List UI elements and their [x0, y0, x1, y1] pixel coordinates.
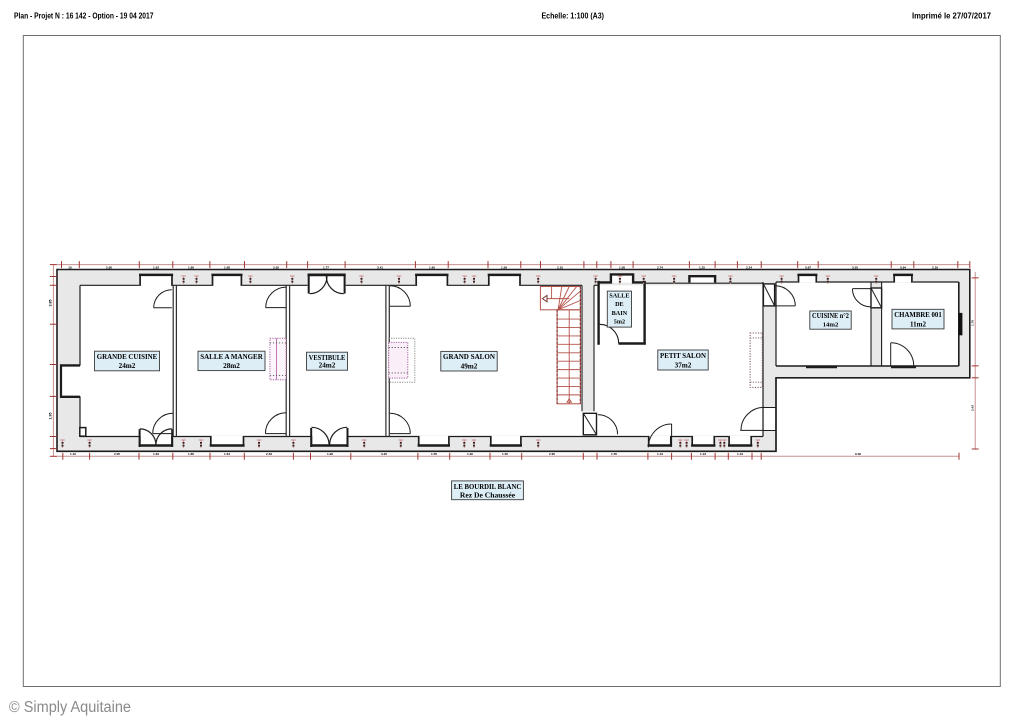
svg-text:1.95: 1.95: [48, 413, 52, 420]
svg-text:2.90: 2.90: [106, 265, 112, 269]
svg-text:24m2: 24m2: [119, 362, 136, 370]
svg-text:Imprimé le 27/07/2017: Imprimé le 27/07/2017: [912, 12, 991, 21]
svg-text:SALLE A MANGER: SALLE A MANGER: [200, 352, 263, 361]
svg-text:DE: DE: [615, 301, 624, 308]
svg-text:2.33: 2.33: [266, 452, 272, 456]
svg-text:3.41: 3.41: [377, 265, 383, 269]
svg-text:1.13: 1.13: [700, 452, 706, 456]
svg-text:1.68: 1.68: [224, 265, 230, 269]
svg-text:2.05: 2.05: [273, 265, 279, 269]
svg-text:0.97: 0.97: [805, 265, 811, 269]
svg-text:1.59: 1.59: [501, 265, 507, 269]
svg-text:1.08: 1.08: [619, 265, 625, 269]
svg-text:1.13: 1.13: [657, 452, 663, 456]
svg-text:2.10: 2.10: [557, 265, 563, 269]
svg-text:1.63: 1.63: [153, 452, 159, 456]
svg-text:1.64: 1.64: [224, 452, 230, 456]
svg-text:1.80: 1.80: [188, 452, 194, 456]
svg-text:11m2: 11m2: [910, 320, 926, 328]
svg-text:SALLE: SALLE: [609, 293, 629, 300]
svg-text:2.05: 2.05: [114, 452, 120, 456]
svg-text:2.19: 2.19: [932, 265, 938, 269]
svg-text:5m2: 5m2: [614, 318, 625, 325]
svg-text:1.50: 1.50: [502, 452, 508, 456]
svg-text:24m2: 24m2: [319, 362, 336, 370]
svg-text:1.10: 1.10: [70, 452, 76, 456]
svg-text:BAIN: BAIN: [612, 310, 628, 317]
svg-text:1.60: 1.60: [429, 265, 435, 269]
svg-text:0.94: 0.94: [900, 265, 906, 269]
svg-text:3.20: 3.20: [381, 452, 387, 456]
svg-text:1.77: 1.77: [323, 265, 329, 269]
svg-text:49m2: 49m2: [461, 362, 478, 370]
svg-text:1.55: 1.55: [611, 452, 617, 456]
svg-text:CUISINE n°2: CUISINE n°2: [812, 313, 849, 320]
svg-text:Plan - Projet N : 16 142 - Opt: Plan - Projet N : 16 142 - Option - 19 0…: [14, 12, 154, 21]
svg-text:10: 10: [68, 265, 72, 269]
svg-text:3.85: 3.85: [48, 300, 52, 307]
svg-text:1.80: 1.80: [188, 265, 194, 269]
svg-text:GRANDE CUISINE: GRANDE CUISINE: [97, 352, 158, 361]
svg-text:2.95: 2.95: [549, 452, 555, 456]
svg-text:14m2: 14m2: [823, 322, 839, 329]
svg-text:Rez De Chaussée: Rez De Chaussée: [460, 490, 516, 499]
svg-text:1.90: 1.90: [467, 452, 473, 456]
svg-text:37m2: 37m2: [675, 361, 692, 369]
svg-text:2.24: 2.24: [746, 265, 752, 269]
svg-text:1.70: 1.70: [970, 320, 974, 326]
svg-text:Echelle: 1:100 (A3): Echelle: 1:100 (A3): [542, 12, 605, 21]
svg-text:9.48: 9.48: [855, 452, 861, 456]
svg-text:3.55: 3.55: [852, 265, 858, 269]
svg-text:1.90: 1.90: [327, 452, 333, 456]
svg-text:1.13: 1.13: [737, 452, 743, 456]
svg-text:1.25: 1.25: [699, 265, 705, 269]
svg-text:CHAMBRE 001: CHAMBRE 001: [894, 310, 942, 319]
svg-text:1.63: 1.63: [153, 265, 159, 269]
svg-text:PETIT SALON: PETIT SALON: [660, 351, 706, 360]
svg-text:28m2: 28m2: [223, 362, 240, 370]
svg-text:2.43: 2.43: [970, 405, 974, 411]
svg-text:2.74: 2.74: [657, 265, 663, 269]
svg-text:1.55: 1.55: [431, 452, 437, 456]
svg-text:GRAND SALON: GRAND SALON: [443, 352, 495, 361]
svg-text:© Simply Aquitaine: © Simply Aquitaine: [9, 699, 131, 716]
